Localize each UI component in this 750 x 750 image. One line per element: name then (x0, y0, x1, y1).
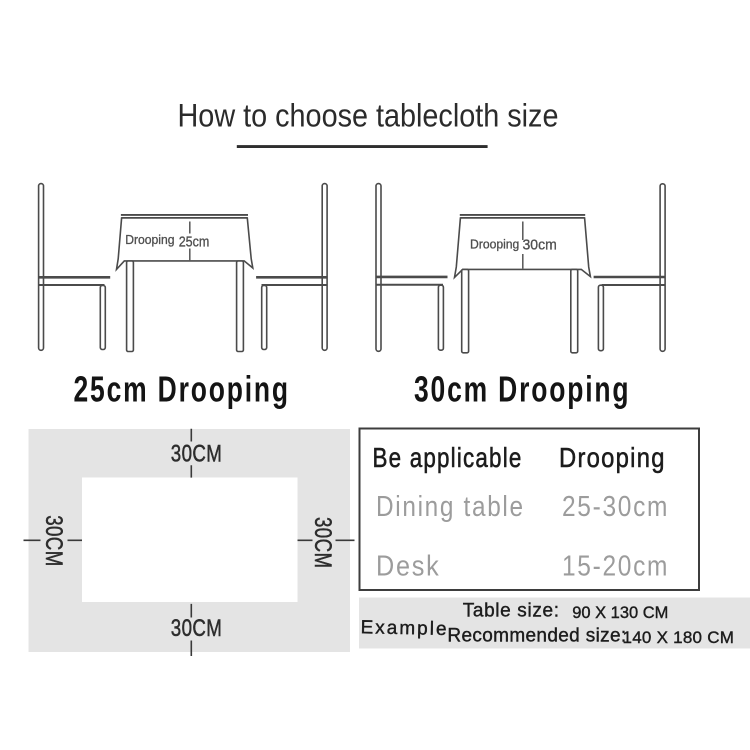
svg-text:Table size:: Table size: (463, 601, 560, 622)
svg-text:Dining table: Dining table (376, 490, 525, 522)
svg-text:Recommended size:: Recommended size: (447, 626, 626, 647)
svg-text:25cm Drooping: 25cm Drooping (74, 368, 290, 409)
svg-text:25cm: 25cm (179, 233, 210, 249)
svg-text:30CM: 30CM (171, 441, 222, 468)
svg-text:Example: Example (360, 617, 448, 640)
svg-text:Desk: Desk (376, 549, 440, 582)
svg-text:30CM: 30CM (40, 515, 67, 566)
svg-text:Drooping: Drooping (470, 237, 519, 251)
svg-text:30CM: 30CM (171, 615, 222, 642)
svg-text:25-30cm: 25-30cm (562, 490, 669, 522)
svg-text:15-20cm: 15-20cm (562, 550, 669, 582)
svg-text:140 X 180 CM: 140 X 180 CM (623, 628, 735, 647)
svg-text:Be applicable: Be applicable (373, 443, 523, 474)
svg-text:How to choose tablecloth size: How to choose tablecloth size (178, 98, 559, 134)
svg-text:30cm Drooping: 30cm Drooping (414, 368, 630, 409)
svg-text:Drooping: Drooping (559, 441, 666, 473)
svg-text:90 X 130 CM: 90 X 130 CM (572, 603, 668, 622)
svg-text:30cm: 30cm (523, 237, 557, 253)
svg-text:Drooping: Drooping (125, 233, 174, 247)
svg-text:30CM: 30CM (309, 517, 336, 568)
